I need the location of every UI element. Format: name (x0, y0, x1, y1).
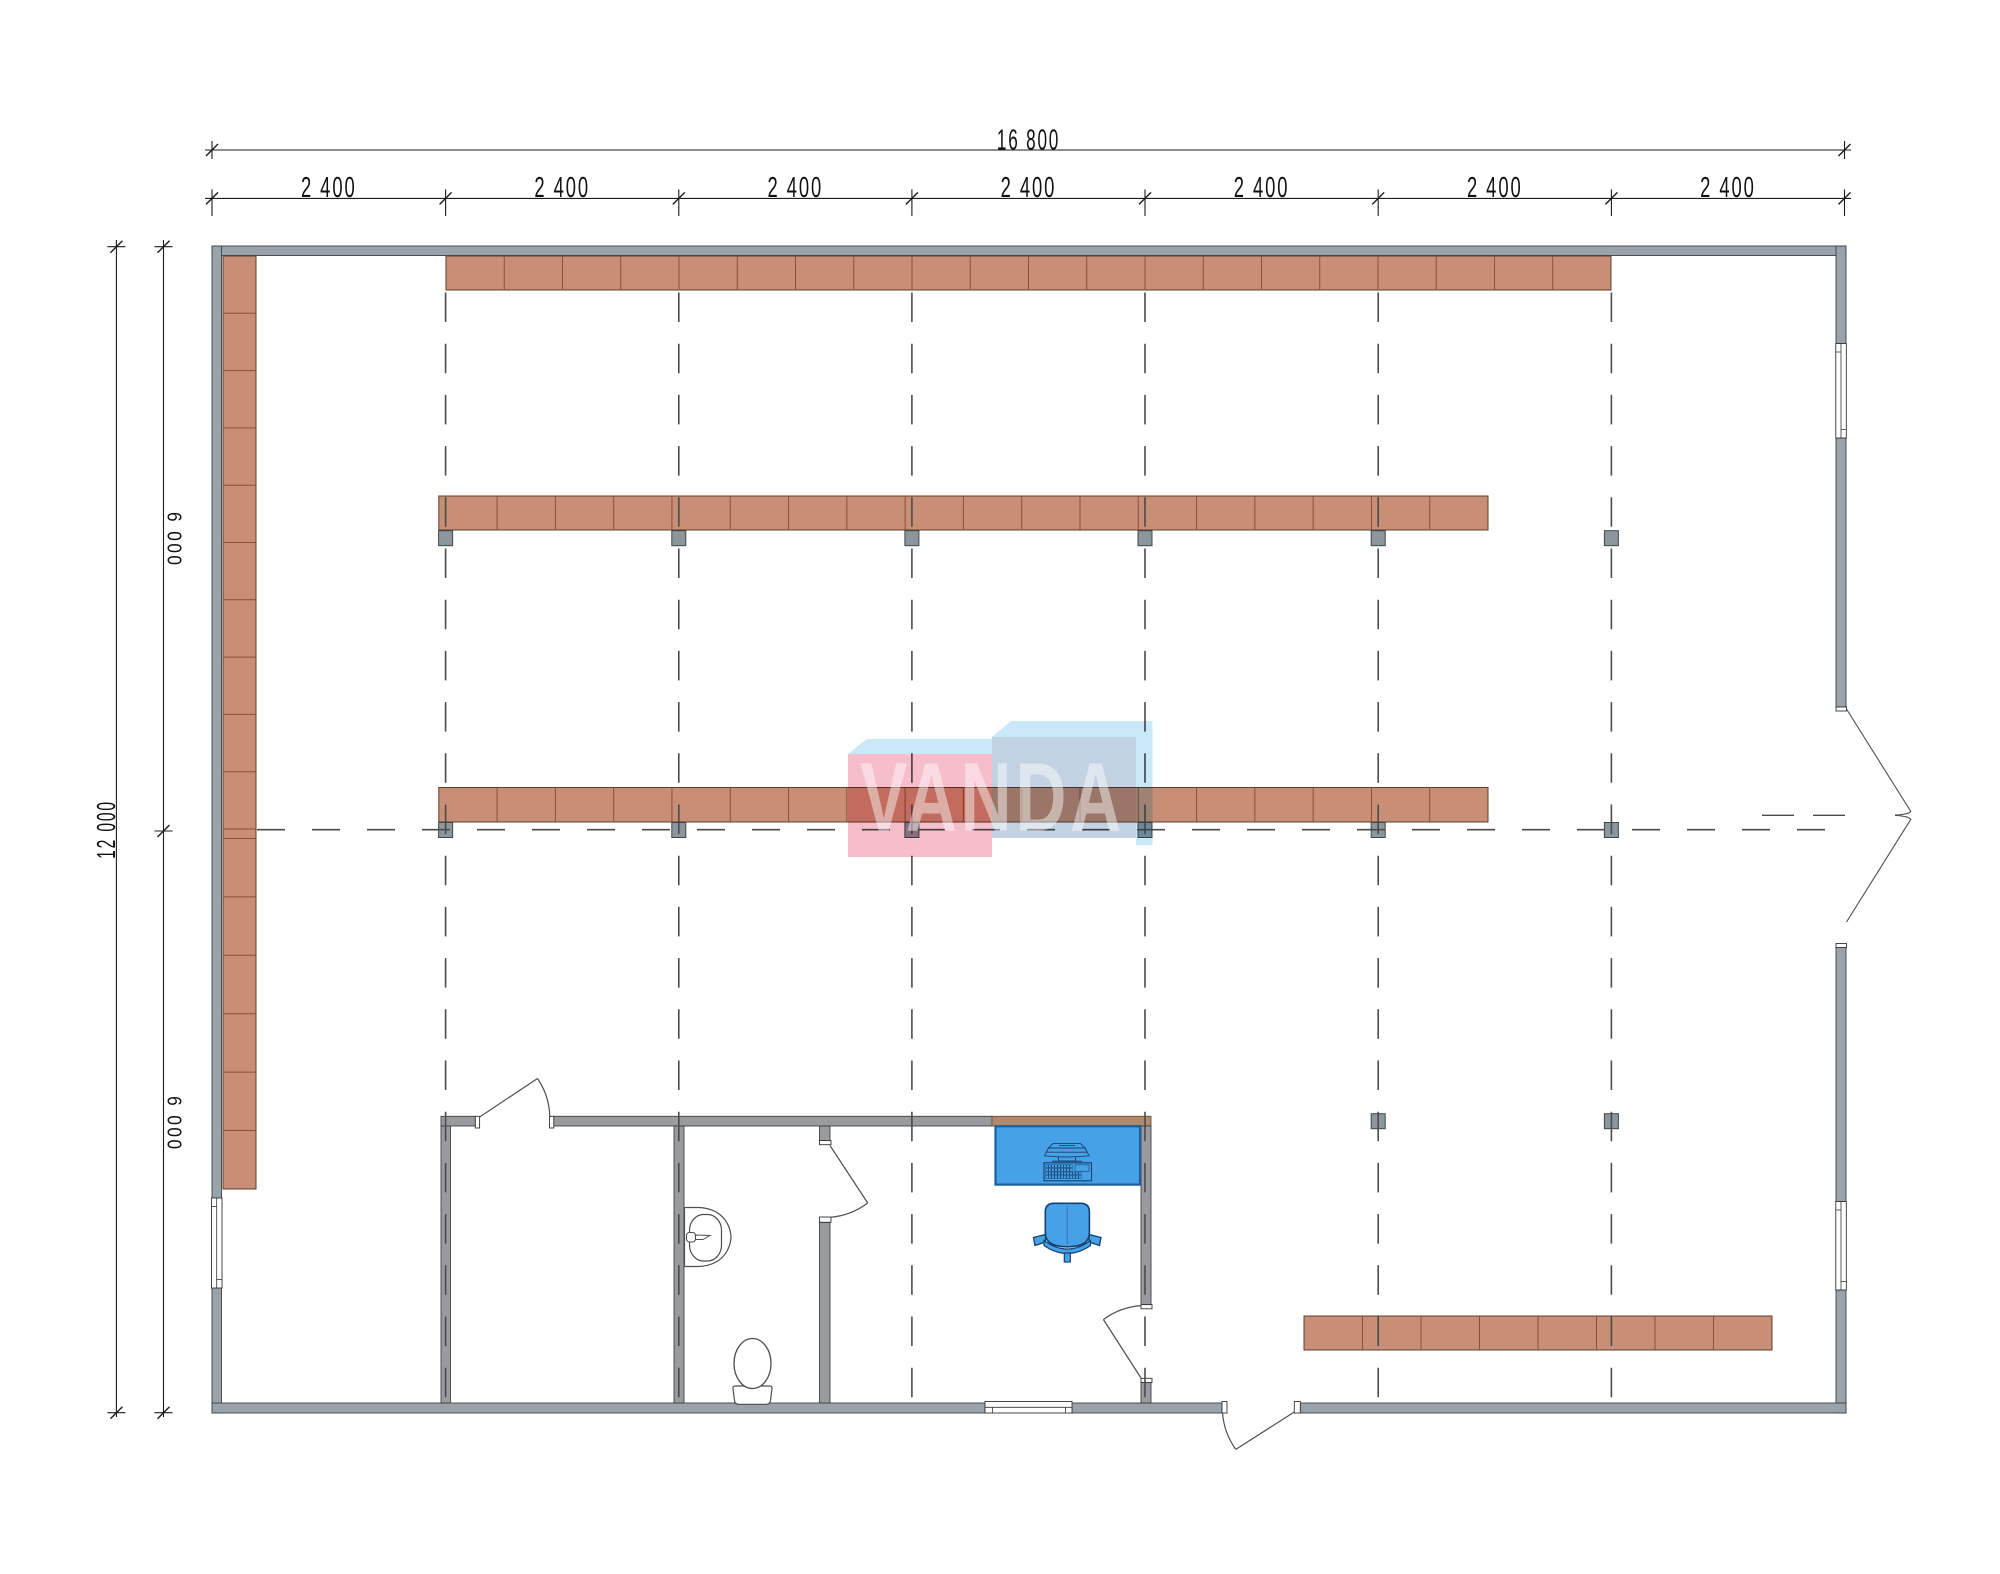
svg-text:2 400: 2 400 (1467, 172, 1523, 204)
svg-text:6 000: 6 000 (162, 512, 185, 567)
svg-text:2 400: 2 400 (1234, 172, 1290, 204)
svg-text:2 400: 2 400 (301, 172, 357, 204)
svg-text:2 400: 2 400 (534, 172, 590, 204)
svg-text:2 400: 2 400 (1700, 172, 1756, 204)
svg-text:6 000: 6 000 (162, 1096, 185, 1151)
svg-text:12 000: 12 000 (93, 800, 121, 859)
svg-text:2 400: 2 400 (1001, 172, 1057, 204)
svg-text:2 400: 2 400 (768, 172, 824, 204)
svg-text:VANDA: VANDA (860, 743, 1125, 852)
svg-text:16 800: 16 800 (997, 124, 1060, 156)
